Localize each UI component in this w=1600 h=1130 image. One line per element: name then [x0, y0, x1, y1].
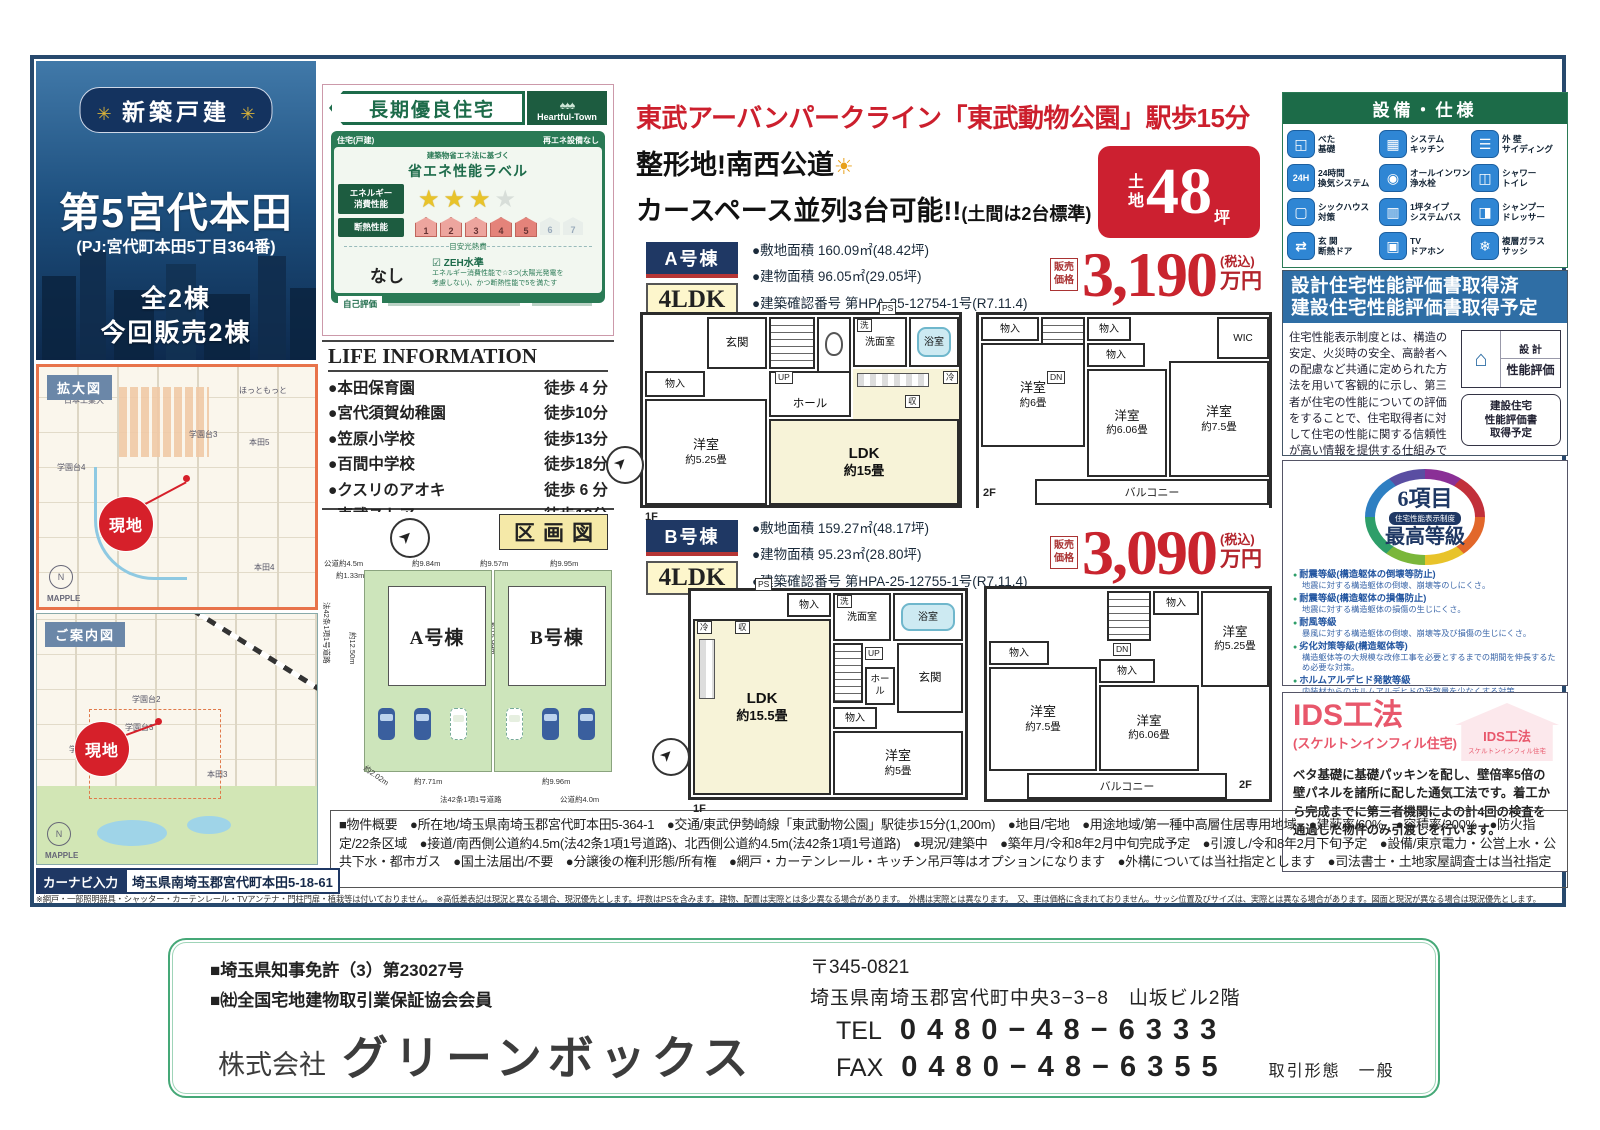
floor-tag: 1F	[693, 803, 706, 815]
equipment-item: 24H24時間換気システム	[1287, 164, 1379, 192]
car-outline-icon	[450, 708, 467, 740]
car-icon	[414, 708, 431, 740]
headline-car-space: カースペース並列3台可能!!(土間は2台標準)	[636, 189, 1091, 228]
grade-item: 耐震等級(構造躯体の倒壊等防止)地震に対する構造躯体の倒壊、崩壊等のしにくさ。	[1293, 569, 1557, 591]
car-outline-icon	[506, 708, 523, 740]
mapple-logo: MAPPLE	[45, 851, 78, 860]
design-evaluation-badge: ⌂ 設 計性能評価	[1461, 330, 1561, 388]
balcony: バルコニー	[1027, 773, 1227, 799]
plot-plan-title: 区画図	[499, 514, 608, 550]
new-build-badge-label: 新築戸建	[122, 99, 230, 125]
site-pointer-dot	[155, 718, 162, 725]
floorplan-b-1f: PS 物入 洗面室 洗 浴室 LDK約15.5畳 冷 収 UP ホール 玄関 物…	[688, 588, 968, 800]
company-footer: ■埼玉県知事免許（3）第23027号 ■㈳全国宅地建物取引業保証協会会員 株式会…	[168, 938, 1440, 1098]
room-bath: 浴室	[909, 317, 959, 367]
evaluation-description: 住宅性能表示制度とは、構造の安定、火災時の安全、高齢者への配慮など共通に定められ…	[1289, 330, 1455, 474]
dim-top-road: 公道約4.5m	[324, 558, 363, 569]
insulation-level: 2	[440, 217, 462, 237]
map-place-label: ほっともっと	[239, 385, 287, 396]
floor-tag: 1F	[645, 511, 658, 523]
utility-cost-divider: 目安光熱費	[344, 241, 592, 252]
room-western-75: 洋室約7.5畳	[989, 667, 1097, 771]
equipment-item: ▢シックハウス対策	[1287, 198, 1379, 226]
property-overview: ■物件概要 ●所在地/埼玉県南埼玉郡宮代町本田5-364-1 ●交通/東武伊勢崎…	[330, 810, 1568, 888]
equipment-item: ❄複層ガラスサッシ	[1471, 232, 1563, 260]
project-title: 第5宮代本田	[36, 179, 316, 239]
life-information: LIFE INFORMATION ●本田保育園徒歩 4 分 ●宮代須賀幼稚園徒歩…	[322, 340, 614, 510]
house-evaluation-icon: ⌂	[1462, 331, 1501, 387]
system-bath-icon: ▥	[1379, 198, 1407, 226]
dn-label: DN	[1047, 371, 1065, 384]
insulation-level: 1	[415, 217, 437, 237]
equipment-item: ◨シャンプードレッサー	[1471, 198, 1563, 226]
life-item: ●クスリのアオキ徒歩 6 分	[328, 478, 608, 500]
insulation-level: 5	[515, 217, 537, 237]
room-closet: 物入	[787, 593, 831, 617]
room-western-5: 洋室約5畳	[833, 731, 963, 795]
equipment-item: ◉オールインワン浄水栓	[1379, 164, 1471, 192]
floorplan-a-1f: PS 玄関 UP 洗面室 洗 浴室 物入 ホール 冷 収 洋室約5.25畳 LD…	[640, 312, 962, 508]
construction-evaluation-badge: 建設住宅 性能評価書 取得予定	[1461, 394, 1561, 446]
a-price-value: 3,190	[1082, 246, 1216, 304]
room-toilet	[817, 317, 851, 377]
a-building-area: ●建物面積 96.05㎡(29.05坪)	[752, 264, 1027, 290]
equipment-item: ⇄玄 関断熱ドア	[1287, 232, 1379, 260]
company-name: 株式会社 グリーンボックス	[218, 1022, 754, 1088]
display-system-chip: 住宅性能表示制度	[1389, 512, 1461, 525]
insulation-chip: 断熱性能	[338, 218, 404, 237]
company-address: 埼玉県南埼玉郡宮代町中央3−3−8 山坂ビル2階	[810, 983, 1395, 1010]
room-closet: 物入	[1087, 343, 1145, 367]
compass-icon: N	[49, 565, 73, 589]
room-western-525: 洋室約5.25畳	[1201, 591, 1269, 687]
map-place-label: 学園台2	[132, 694, 160, 705]
map-blocks-patch	[119, 387, 209, 457]
tel-row: TEL 0480−48−6333	[810, 1014, 1395, 1047]
insulation-level: 6	[540, 217, 560, 235]
building-a-tag: A号棟	[646, 242, 738, 278]
up-label: UP	[865, 647, 883, 660]
dim-a-bottom: 約7.71m	[414, 776, 442, 787]
equipment-specs-box: 設備・仕様 ◱べた基礎 ▦システムキッチン ☰外 壁サイディング 24H24時間…	[1282, 92, 1568, 268]
building-b-header: B号棟 4LDK	[646, 520, 738, 595]
shower-toilet-icon: ◫	[1471, 164, 1499, 192]
room-western-606: 洋室約6.06畳	[1087, 369, 1167, 477]
life-item: ●百間中学校徒歩18分	[328, 452, 608, 474]
equipment-grid: ◱べた基礎 ▦システムキッチン ☰外 壁サイディング 24H24時間換気システム…	[1283, 124, 1567, 266]
fine-print: ※網戸・一部照明器具・シャッター・カーテンレール・TVアンテナ・門柱門扉・植栽等…	[36, 893, 1564, 905]
room-western-75: 洋室約7.5畳	[1169, 361, 1269, 477]
b-building-area: ●建物面積 95.23㎡(28.80坪)	[752, 542, 1027, 568]
room-ldk: LDK約15畳	[769, 419, 959, 505]
building-a-header: A号棟 4LDK	[646, 242, 738, 317]
building-b-tag: B号棟	[646, 520, 738, 556]
map-place-label: 学園台3	[189, 429, 217, 440]
double-glazing-icon: ❄	[1471, 232, 1499, 260]
performance-evaluation-box: 設計住宅性能評価書取得済 建設住宅性能評価書取得予定 住宅性能表示制度とは、構造…	[1282, 270, 1568, 456]
fridge-label: 冷	[943, 371, 958, 384]
dim-b-bottom: 約9.96m	[542, 776, 570, 787]
room-closet: 物入	[1153, 591, 1199, 615]
shampoo-dresser-icon: ◨	[1471, 198, 1499, 226]
floor-tag: 2F	[983, 487, 996, 499]
map-place-label: 学園台4	[57, 462, 85, 473]
long-term-housing-card: 長期優良住宅 ♠♠♠ Heartful-Town 住宅(戸建) 再エネ設備なし …	[322, 84, 614, 336]
room-closet: 物入	[981, 317, 1039, 341]
project-subtitle: (PJ:宮代町本田5丁目364番)	[36, 233, 316, 257]
floor-tag: 2F	[1239, 779, 1252, 791]
building-b-footprint: B号棟	[508, 586, 606, 686]
insulation-level: 7	[563, 217, 583, 235]
room-entrance: 玄関	[897, 643, 963, 713]
six-items-label: 6項目	[1397, 488, 1452, 510]
map-pond	[187, 816, 231, 834]
floorplan-a-2f: 物入 DN 物入 WIC 洋室約6畳 物入 洋室約6.06畳 洋室約7.5畳 バ…	[976, 312, 1272, 508]
insulation-level: 3	[465, 217, 487, 237]
price-suffix: (税込)万円	[1220, 255, 1262, 294]
toilet-icon	[825, 332, 843, 356]
washer-label: 洗	[857, 319, 872, 332]
zeh-note: エネルギー消費性能で☆3つ(太陽光発電を 考慮しない)、かつ断熱性能で5を満たす	[432, 269, 564, 288]
transaction-type: 取引形態 一般	[1269, 1057, 1395, 1081]
map-place-label: 学園台3	[125, 722, 153, 733]
fax-number: 0480−48−6355	[901, 1051, 1228, 1084]
units-for-sale: 今回販売2棟	[36, 313, 316, 349]
energy-label-card: 住宅(戸建) 再エネ設備なし 建築物省エネ法に基づく 省エネ性能ラベル エネルギ…	[331, 131, 605, 303]
new-build-badge: ✳ 新築戸建 ✳	[80, 87, 273, 133]
company-name-text: グリーンボックス	[342, 1022, 754, 1088]
long-term-housing-label: 長期優良住宅	[329, 91, 525, 125]
equipment-item: ◫シャワートイレ	[1471, 164, 1563, 192]
building-b-details: ●敷地面積 159.27㎡(48.17坪) ●建物面積 95.23㎡(28.80…	[752, 516, 1027, 595]
storage-label: 収	[735, 621, 750, 634]
life-information-title: LIFE INFORMATION	[328, 344, 608, 372]
room-closet: 物入	[1099, 659, 1155, 683]
grade-item: 耐風等級暴風に対する構造躯体の倒壊、崩壊等及び損傷の生じにくさ。	[1293, 617, 1557, 639]
b-site-area: ●敷地面積 159.27㎡(48.17坪)	[752, 516, 1027, 542]
self-evaluation-chip: 自己評価	[338, 296, 382, 312]
tel-label: TEL	[836, 1017, 882, 1046]
compass-icon: N	[47, 822, 71, 846]
compass-icon	[606, 446, 644, 484]
price-suffix: (税込)万円	[1220, 533, 1262, 572]
laurel-right-icon: ✳	[240, 104, 255, 124]
laurel-left-icon: ✳	[97, 104, 112, 124]
fine-text-bar	[388, 303, 520, 306]
evaluation-badges: ⌂ 設 計性能評価 建設住宅 性能評価書 取得予定	[1461, 330, 1561, 474]
ps-label: PS	[879, 302, 896, 315]
equipment-item: ▦システムキッチン	[1379, 130, 1471, 158]
land-size-value: 48	[1146, 159, 1212, 225]
license-info: ■埼玉県知事免許（3）第23027号 ■㈳全国宅地建物取引業保証協会会員	[210, 956, 492, 1016]
map-place-label: 本田4	[254, 562, 274, 573]
sun-icon: ☀	[834, 154, 854, 179]
washer-label: 洗	[837, 595, 852, 608]
building-a-price: 販売価格 3,190 (税込)万円	[1050, 246, 1262, 304]
car-navi-label: カーナビ入力	[36, 868, 125, 894]
sick-house-icon: ▢	[1287, 198, 1315, 226]
six-grade-box: 6項目 住宅性能表示制度 最高等級 耐震等級(構造躯体の倒壊等防止)地震に対する…	[1282, 460, 1568, 686]
site-marker: 現地	[75, 722, 129, 776]
fridge-label: 冷	[697, 621, 712, 634]
stairs	[1107, 591, 1151, 641]
dim-mid-top: 約9.57m	[480, 558, 508, 569]
trees-icon: ♠♠♠	[560, 100, 575, 112]
room-western-525: 洋室約5.25畳	[645, 399, 767, 505]
equipment-item: ☰外 壁サイディング	[1471, 130, 1563, 158]
energy-consumption-chip: エネルギー 消費性能	[338, 184, 404, 214]
car-icon	[578, 708, 595, 740]
tv-doorphone-icon: ▣	[1379, 232, 1407, 260]
site-marker: 現地	[99, 497, 153, 551]
kitchen-counter-icon	[699, 639, 715, 699]
insulation-scale: 1 2 3 4 5 6 7	[412, 217, 583, 237]
grade-item: 劣化対策等級(構造躯体等)構造躯体等の大規模な改修工事を必要とするまでの期間を伸…	[1293, 641, 1557, 672]
life-item: ●宮代須賀幼稚園徒歩10分	[328, 401, 608, 423]
entrance-door-icon: ⇄	[1287, 232, 1315, 260]
insulation-level: 4	[490, 217, 512, 237]
car-navi-bar: カーナビ入力 埼玉県南埼玉郡宮代町本田5-18-61	[36, 868, 318, 894]
flyer-page: { "hero": { "badge": "新築戸建", "title": "第…	[0, 0, 1600, 1130]
siding-icon: ☰	[1471, 130, 1499, 158]
price-label: 販売価格	[1050, 258, 1078, 291]
no-renewable-label: 再エネ設備なし	[543, 135, 599, 146]
room-entrance: 玄関	[707, 317, 767, 369]
land-size-prefix: 土地	[1128, 173, 1144, 211]
building-b-price: 販売価格 3,090 (税込)万円	[1050, 524, 1262, 582]
energy-law-caption: 建築物省エネ法に基づく	[334, 150, 602, 161]
map-pond	[97, 820, 167, 846]
total-units: 全2棟	[36, 279, 316, 315]
fine-text-bar	[532, 303, 592, 306]
dim-b-top: 約9.95m	[550, 558, 578, 569]
room-bath: 浴室	[893, 593, 963, 641]
energy-label-inner: 建築物省エネ法に基づく 省エネ性能ラベル エネルギー 消費性能 ★★★★ 断熱性…	[334, 147, 602, 293]
land-size-badge: 土地 48 坪	[1098, 146, 1260, 238]
stairs	[833, 643, 863, 703]
room-western-606: 洋室約6.06畳	[1099, 685, 1199, 771]
license-line2: ■㈳全国宅地建物取引業保証協会会員	[210, 986, 492, 1016]
compass-icon	[390, 518, 430, 558]
guide-map: ご案内図 学園台2 学園台3 学園台4 本田3 現地 N MAPPLE	[36, 613, 318, 865]
energy-star-rating: ★★★★	[418, 185, 520, 214]
brand-name: Heartful-Town	[537, 112, 597, 122]
enlarged-map: 拡大図 学園台3 学園台4 本田5 本田4 ほっともっと 日本工業大 現地 N …	[36, 364, 318, 610]
price-label: 販売価格	[1050, 536, 1078, 569]
equipment-item: ◱べた基礎	[1287, 130, 1379, 158]
stairs	[769, 317, 815, 369]
star-off: ★	[495, 186, 521, 213]
equipment-item: ▣TVドアホン	[1379, 232, 1471, 260]
dn-label: DN	[1113, 643, 1131, 656]
right-road-label: 公道約4.0m	[560, 794, 599, 805]
hero-panel: ✳ 新築戸建 ✳ 第5宮代本田 (PJ:宮代町本田5丁目364番) 全2棟 今回…	[36, 61, 316, 360]
room-hall: ホール	[865, 667, 895, 705]
balcony: バルコニー	[1035, 479, 1269, 505]
room-closet: 物入	[645, 371, 705, 397]
fax-row: FAX 0480−48−6355 取引形態 一般	[810, 1051, 1395, 1084]
b-price-value: 3,090	[1082, 524, 1216, 582]
floorplan-b-2f: DN 物入 洋室約5.25畳 物入 洋室約7.5畳 物入 洋室約6.06畳 バル…	[984, 586, 1272, 802]
storage-label: 収	[905, 395, 920, 408]
zeh-standard: ☑ ZEH水準	[432, 254, 564, 269]
company-prefix: 株式会社	[218, 1043, 326, 1082]
room-closet: 物入	[1087, 317, 1131, 341]
map-place-label: 本田3	[207, 769, 227, 780]
a-site-area: ●敷地面積 160.09㎡(48.42坪)	[752, 238, 1027, 264]
equipment-title: 設備・仕様	[1283, 93, 1567, 124]
system-kitchen-icon: ▦	[1379, 130, 1407, 158]
grade-item: 耐震等級(構造躯体の損傷防止)地震に対する構造躯体の損傷の生じにくさ。	[1293, 593, 1557, 615]
company-zip: 〒345-0821	[810, 952, 1395, 979]
guide-map-label: ご案内図	[45, 622, 125, 647]
water-purifier-icon: ◉	[1379, 164, 1407, 192]
room-wic: WIC	[1217, 317, 1269, 359]
headline-land-shape: 整形地!南西公道☀	[636, 143, 854, 182]
map-place-label: 本田5	[249, 437, 269, 448]
bottom-road-label: 法42条1項1号道路	[440, 794, 502, 805]
compass-icon	[652, 738, 690, 776]
car-icon	[542, 708, 559, 740]
life-item: ●本田保育園徒歩 4 分	[328, 376, 608, 398]
zeh-checkbox-icon: ☑	[432, 258, 441, 269]
room-closet: 物入	[833, 707, 877, 729]
land-size-unit: 坪	[1214, 204, 1230, 228]
utility-cost-value: なし	[342, 254, 432, 288]
car-navi-address: 埼玉県南埼玉郡宮代町本田5-18-61	[125, 868, 340, 894]
ps-label: PS	[755, 578, 772, 591]
company-contact: 〒345-0821 埼玉県南埼玉郡宮代町中央3−3−8 山坂ビル2階 TEL 0…	[810, 952, 1395, 1084]
license-line1: ■埼玉県知事免許（3）第23027号	[210, 956, 492, 986]
kitchen-counter-icon	[857, 373, 929, 387]
six-grade-ring: 6項目 住宅性能表示制度 最高等級	[1341, 469, 1509, 565]
energy-label-title: 省エネ性能ラベル	[334, 161, 602, 181]
up-label: UP	[775, 371, 793, 384]
enlarged-map-label: 拡大図	[47, 375, 112, 400]
room-closet: 物入	[989, 641, 1049, 665]
equipment-item: ▥1坪タイプシステムバス	[1379, 198, 1471, 226]
dim-a-top: 約9.84m	[412, 558, 440, 569]
foundation-icon: ◱	[1287, 130, 1315, 158]
evaluation-header: 設計住宅性能評価書取得済 建設住宅性能評価書取得予定	[1283, 271, 1567, 323]
left-road-label: 法42条1項1号道路	[321, 602, 332, 664]
ventilation-icon: 24H	[1287, 164, 1315, 192]
car-icon	[378, 708, 395, 740]
stars-on: ★★★	[418, 186, 495, 213]
fax-label: FAX	[836, 1054, 883, 1083]
tel-number: 0480−48−6333	[900, 1014, 1227, 1047]
dim-offset: 約1.33m	[336, 570, 364, 581]
mapple-logo: MAPPLE	[47, 594, 80, 603]
life-item: ●笠原小学校徒歩13分	[328, 427, 608, 449]
room-western-6: 洋室約6畳	[981, 343, 1085, 447]
house-type-label: 住宅(戸建)	[337, 135, 374, 146]
plot-plan: 区画図 公道約4.5m 約1.33m 約9.84m 約9.57m 約9.95m …	[322, 512, 614, 808]
site-pointer-dot	[183, 475, 190, 482]
headline-station: 東武アーバンパークライン「東武動物公園」駅歩15分	[636, 98, 1250, 135]
highest-grade-label: 最高等級	[1385, 527, 1465, 547]
heartful-town-logo: ♠♠♠ Heartful-Town	[527, 91, 607, 125]
dim-left-length: 約12.50m	[347, 632, 358, 665]
building-a-footprint: A号棟	[388, 586, 486, 686]
